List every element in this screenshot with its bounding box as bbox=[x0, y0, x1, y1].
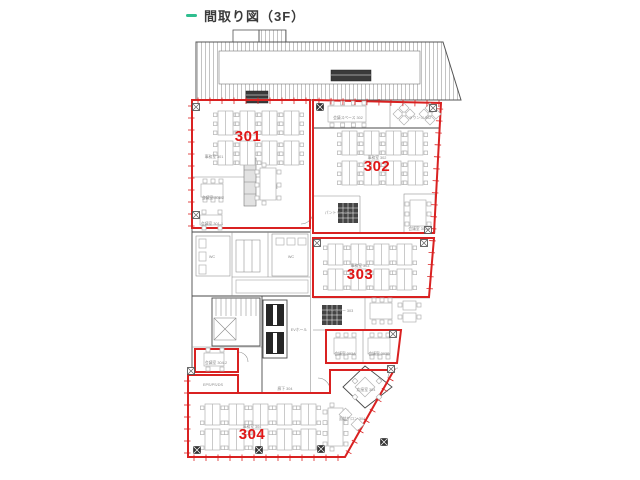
meeting-304-2-label: 会議室 304-2 bbox=[205, 360, 227, 365]
meeting-301-2-label: 会議室 301-2 bbox=[202, 195, 224, 200]
room-303-number: 303 bbox=[347, 266, 374, 283]
eps-label: EPS/PS/DS bbox=[203, 383, 224, 387]
room-301-number: 301 bbox=[235, 128, 262, 145]
meeting-303a-label: 会議室 303A bbox=[334, 351, 356, 356]
room-302-name: 事務室 302 bbox=[368, 155, 387, 160]
room-303-name: 事務室 303 bbox=[351, 263, 370, 268]
room-302-number: 302 bbox=[364, 158, 391, 175]
lounge-302-label: ラウンジ 302 bbox=[409, 115, 432, 120]
balcony-band bbox=[196, 30, 461, 103]
salon-304-label: 面談サロン 304 bbox=[339, 416, 365, 421]
meeting-301-1-label: 会議室 301-1 bbox=[201, 221, 223, 226]
room-301-name: 事務室 301 bbox=[205, 154, 224, 159]
floor-plan: 301 302 303 304 事務室 301 事務室 302 事務室 303 … bbox=[0, 0, 640, 480]
ev-hall-label: EVホール bbox=[291, 327, 308, 332]
wc-right-label: WC bbox=[288, 255, 295, 259]
staircase bbox=[212, 298, 260, 346]
corridor-304-label: 廊下 304 bbox=[278, 386, 293, 391]
pantry-302-label: パントリー 302 bbox=[325, 210, 352, 215]
reception-304-label: 応接室 304 bbox=[357, 387, 376, 392]
meeting-303b-label: 会議室 303B bbox=[368, 351, 390, 356]
screenshot-root: 間取り図（3F） bbox=[0, 0, 640, 480]
wc-left-label: WC bbox=[209, 255, 216, 259]
elevator-shafts bbox=[263, 300, 287, 358]
pantry-303-label: パントリー 303 bbox=[327, 308, 354, 313]
room-304-name: 事務室 304 bbox=[243, 424, 262, 429]
furniture-layer bbox=[200, 101, 441, 451]
meeting-302a-label: 会議室 302A bbox=[408, 226, 430, 231]
meeting-space-302-label: 会議スペース 302 bbox=[333, 115, 363, 120]
